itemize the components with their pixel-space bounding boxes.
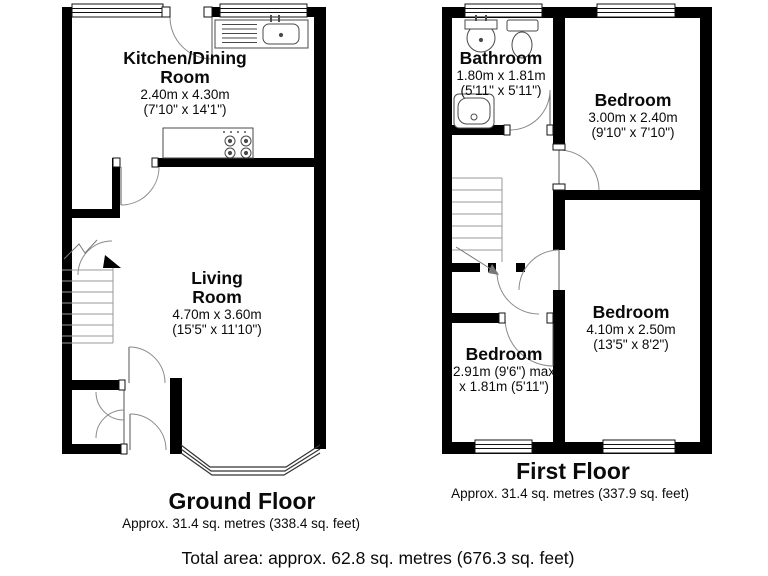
wall-bottom: [62, 444, 127, 454]
door-jamb: [152, 158, 158, 167]
room-name: Bathroom: [456, 49, 545, 68]
room-dimensions-imperial: (15'5" x 11'10"): [172, 322, 262, 337]
door-jamb: [121, 444, 127, 454]
room-dimensions-metric: 2.40m x 4.30m: [123, 87, 246, 102]
room-dimensions-metric: 3.00m x 2.40m: [588, 110, 677, 125]
room-dimensions-imperial: (13'5" x 8'2"): [586, 337, 675, 352]
wall-kitchen-living: [158, 158, 326, 167]
closet-double-doors: [96, 390, 124, 444]
room-name: Living: [191, 268, 243, 288]
room-name: Room: [192, 287, 242, 307]
wall-bay-stub: [170, 378, 182, 454]
room-dimensions-imperial: x 1.81m (5'11"): [453, 379, 555, 394]
door-jamb: [547, 313, 553, 323]
staircase-first: [452, 178, 502, 275]
room-label-bedroom-rear: Bedroom 4.10m x 2.50m (13'5" x 8'2"): [586, 303, 675, 352]
kitchen-sink-icon: [215, 15, 308, 48]
total-area-label: Total area: approx. 62.8 sq. metres (676…: [182, 549, 575, 568]
window: [220, 4, 307, 17]
window: [72, 4, 163, 17]
stove-icon: [163, 128, 253, 158]
window: [475, 440, 532, 453]
room-name: Bedroom: [588, 91, 677, 110]
window: [603, 440, 675, 453]
room-name: Bedroom: [586, 303, 675, 322]
first-floor-title: First Floor: [516, 459, 630, 484]
wall-hall: [62, 380, 125, 390]
room-label-bedroom-small: Bedroom 2.91m (9'6") max x 1.81m (5'11"): [453, 345, 555, 394]
kitchen-door-swing: [121, 167, 159, 205]
room-dimensions-metric: 2.91m (9'6") max: [453, 364, 555, 379]
room-name: Bedroom: [453, 345, 555, 364]
room-name: Kitchen/Dining: [123, 48, 246, 68]
room-dimensions-imperial: (7'10" x 14'1"): [123, 102, 246, 117]
room-dimensions-metric: 1.80m x 1.81m: [456, 68, 545, 83]
room-dimensions-metric: 4.10m x 2.50m: [586, 322, 675, 337]
wall-landing-stub: [442, 263, 480, 272]
door-jamb: [553, 144, 565, 150]
front-door-swing: [130, 414, 166, 450]
door-jamb: [113, 158, 120, 167]
wall-left: [442, 7, 452, 454]
room-dimensions-metric: 4.70m x 3.60m: [172, 307, 262, 322]
wall-right: [314, 7, 326, 449]
first-floor-area: Approx. 31.4 sq. metres (337.9 sq. feet): [451, 486, 689, 501]
door-jamb: [119, 380, 125, 390]
room-dimensions-imperial: (9'10" x 7'10"): [588, 125, 677, 140]
room-label-living: Living Room 4.70m x 3.60m (15'5" x 11'10…: [172, 269, 262, 337]
landing-door-swing: [497, 272, 539, 314]
room-dimensions-imperial: (5'11" x 5'11"): [456, 83, 545, 98]
wall-hall-stub: [62, 209, 112, 218]
door-jamb: [504, 125, 510, 135]
wall-bedroom-small-top: [442, 313, 505, 323]
ground-floor-area: Approx. 31.4 sq. metres (338.4 sq. feet): [122, 516, 360, 531]
hall-door-swing: [129, 347, 165, 383]
door-jamb: [499, 313, 505, 323]
room-name: Room: [160, 67, 210, 87]
door-jamb: [547, 125, 553, 135]
door-jamb: [162, 7, 170, 17]
room-label-kitchen: Kitchen/Dining Room 2.40m x 4.30m (7'10"…: [123, 49, 246, 117]
bathroom-sink-icon: [465, 15, 497, 52]
door-leaf: [103, 255, 121, 268]
shower-icon: [454, 94, 494, 128]
wall-bedroom-divider: [553, 190, 712, 200]
room-label-bathroom: Bathroom 1.80m x 1.81m (5'11" x 5'11"): [456, 49, 545, 98]
door-jamb: [204, 7, 212, 17]
window: [597, 4, 675, 17]
door-jamb: [553, 184, 565, 190]
wall-bathroom-right: [553, 7, 565, 150]
ground-floor-title: Ground Floor: [169, 489, 316, 514]
wall-right: [700, 7, 712, 454]
room-label-bedroom-front: Bedroom 3.00m x 2.40m (9'10" x 7'10"): [588, 91, 677, 140]
bay-window: [181, 445, 320, 475]
